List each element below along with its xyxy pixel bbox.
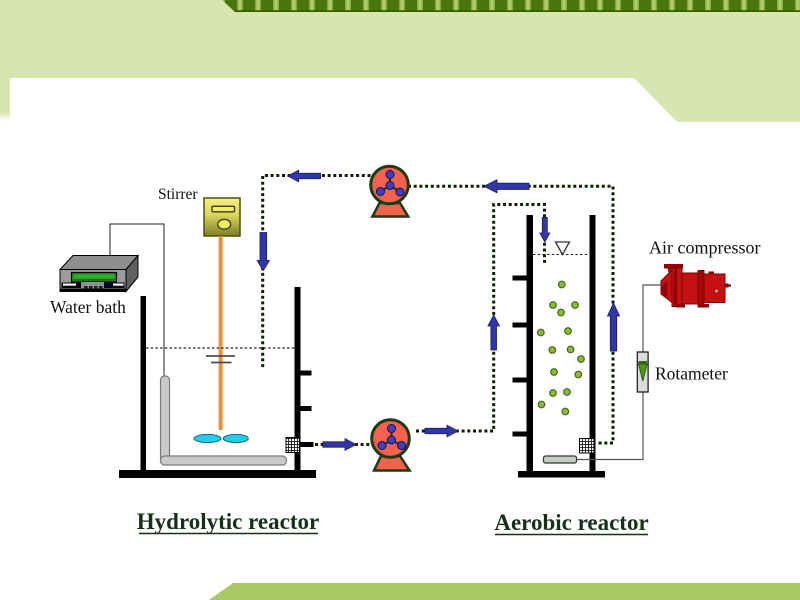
svg-text:Aerobic reactor: Aerobic reactor (494, 510, 648, 535)
svg-text:Rotameter: Rotameter (655, 364, 728, 384)
svg-text:Water bath: Water bath (50, 297, 126, 317)
svg-text:Stirrer: Stirrer (158, 186, 198, 203)
svg-text:Hydrolytic reactor: Hydrolytic reactor (137, 509, 319, 534)
svg-text:Air compressor: Air compressor (649, 238, 760, 258)
